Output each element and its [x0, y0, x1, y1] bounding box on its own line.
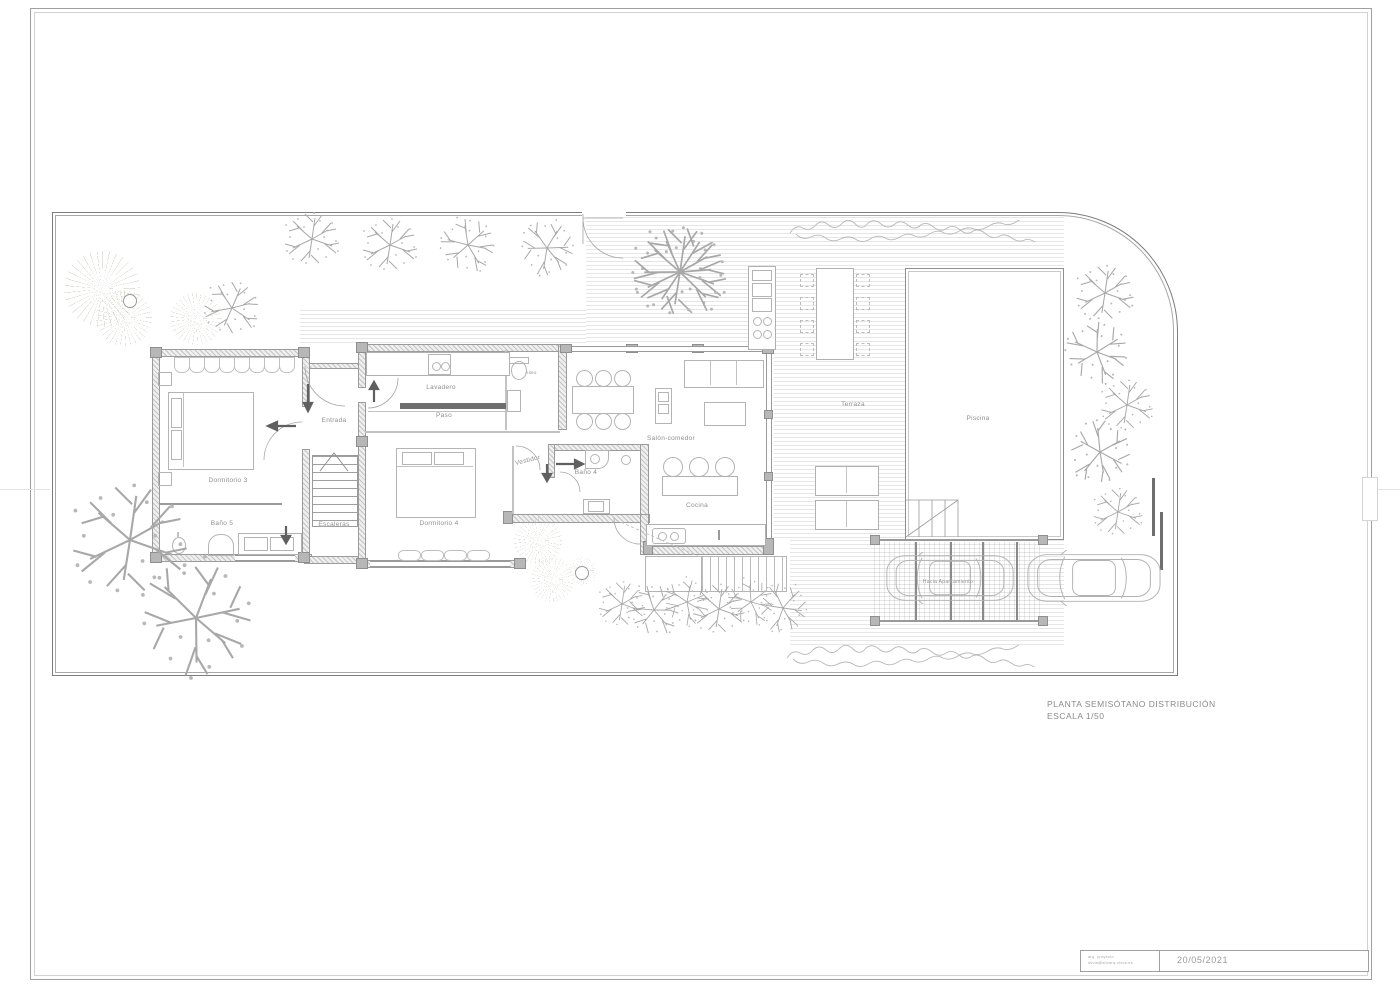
wall	[558, 344, 567, 430]
side-path-decking	[300, 310, 586, 347]
exterior-stairs	[701, 556, 787, 592]
sofa-icon	[684, 360, 764, 388]
area-label-hacia-aparcamiento: Hacia Aparcamiento	[923, 580, 973, 585]
chair-icon	[800, 320, 814, 333]
sink-icon	[244, 537, 268, 551]
wardrobe-door-icon	[444, 550, 467, 561]
carport-post-line	[915, 542, 917, 620]
partition	[512, 446, 514, 514]
chair-icon	[614, 370, 631, 387]
swimming-pool	[905, 268, 1064, 540]
plan-title-scale: ESCALA 1/50	[1047, 710, 1216, 722]
pillow-icon	[171, 398, 182, 428]
closet-door-icon	[189, 357, 205, 373]
sofa-cushion-line	[736, 361, 737, 385]
chair-icon	[856, 343, 870, 356]
room-label-paso: Paso	[436, 413, 452, 420]
wall	[360, 344, 567, 352]
washer-drum	[441, 362, 450, 371]
chair-icon	[856, 274, 870, 287]
window	[766, 419, 772, 472]
wardrobe-door-icon	[398, 550, 421, 561]
carport-post	[1038, 535, 1048, 545]
gate-bar	[1152, 478, 1155, 536]
partition	[160, 503, 282, 505]
chair-icon	[800, 297, 814, 310]
chair-icon	[856, 320, 870, 333]
toilet-icon	[172, 537, 186, 554]
carport-beam	[874, 539, 1044, 541]
drawing-sheet: Dormitorio 3 Baño 5 Entrada Escaleras La…	[0, 0, 1400, 989]
closet-door-icon	[249, 357, 265, 373]
stool-icon	[663, 457, 683, 477]
wardrobe-door-icon	[467, 550, 490, 561]
pillar	[356, 558, 368, 569]
wall	[152, 349, 310, 357]
room-label-lavadero: Lavadero	[426, 385, 456, 392]
room-label-dormitorio3: Dormitorio 3	[209, 478, 248, 485]
room-label-salon-comedor: Salón-comedor	[647, 436, 695, 443]
chair-icon	[614, 413, 631, 430]
pillar	[150, 347, 162, 358]
window	[235, 555, 295, 561]
closet-door-icon	[204, 357, 220, 373]
pillar	[764, 410, 773, 419]
toilet-tank	[509, 357, 529, 364]
stool-icon	[715, 457, 735, 477]
sink-drain	[590, 454, 600, 464]
chair-icon	[576, 370, 593, 387]
faucet-icon	[718, 530, 720, 540]
room-label-escaleras: Escaleras	[318, 522, 349, 529]
kitchen-island	[662, 476, 738, 496]
dining-table-icon	[572, 386, 634, 414]
stool-icon	[689, 457, 709, 477]
chair-icon	[595, 413, 612, 430]
carport-beam	[874, 620, 1044, 622]
sink-icon	[270, 537, 294, 551]
burner-icon	[763, 330, 772, 339]
sofa-cushion-line	[710, 361, 711, 385]
bed-headboard	[397, 466, 473, 467]
chair-icon	[800, 274, 814, 287]
closet-door-icon	[264, 357, 280, 373]
window	[572, 346, 762, 352]
pillow-icon	[171, 430, 182, 460]
burner-icon	[753, 330, 762, 339]
lounger-divider	[846, 501, 847, 527]
closet-door-icon	[279, 357, 295, 373]
plan-title-line1: PLANTA SEMISÓTANO DISTRIBUCIÓN	[1047, 698, 1216, 710]
pool-waterline	[908, 271, 1061, 537]
toilet-tank	[177, 532, 179, 538]
landing	[645, 556, 703, 592]
chair-icon	[595, 370, 612, 387]
palm-tree-icon	[530, 558, 574, 602]
room-label-bano4: Baño 4	[575, 470, 597, 477]
chair-icon	[856, 297, 870, 310]
room-label-dormitorio4: Dormitorio 4	[420, 521, 459, 528]
wall	[302, 363, 364, 369]
room-label-bano5: Baño 5	[211, 521, 233, 528]
palm-tree-icon	[170, 293, 222, 345]
area-label-terraza: Terraza	[841, 402, 865, 409]
tree-trunk-icon	[123, 294, 137, 308]
coffee-table-icon	[704, 402, 746, 426]
contact-line2: silvia@silvarq-vives.es	[1088, 960, 1133, 966]
plan-title: PLANTA SEMISÓTANO DISTRIBUCIÓN ESCALA 1/…	[1047, 698, 1216, 723]
tv-unit-shelf	[658, 404, 669, 414]
lounger-icon	[815, 466, 879, 496]
outdoor-table	[816, 268, 854, 360]
partition	[365, 431, 560, 433]
wall	[640, 444, 649, 523]
drain-icon	[621, 455, 631, 465]
closet-door-icon	[219, 357, 235, 373]
lounger-divider	[846, 467, 847, 493]
toilet-seat	[588, 501, 604, 512]
wall	[548, 444, 555, 478]
tree-trunk-icon	[575, 566, 589, 580]
bbq-module	[752, 298, 772, 312]
pillar	[560, 344, 572, 353]
carport-post	[1038, 616, 1048, 626]
fold-mark-left	[0, 489, 50, 490]
carport-post	[870, 535, 880, 545]
carport-post	[870, 616, 880, 626]
burner-icon	[753, 317, 762, 326]
nightstand-icon	[158, 372, 172, 386]
washer-drum	[432, 362, 441, 371]
lounger-icon	[815, 500, 879, 530]
carport-post-line	[982, 542, 984, 620]
room-label-aseo: Aseo	[525, 371, 536, 376]
bbq-module	[752, 283, 772, 297]
bench-icon	[400, 403, 506, 409]
pillar	[356, 436, 368, 447]
sink-bowl	[658, 532, 667, 541]
pillar	[298, 347, 310, 358]
window	[370, 561, 510, 567]
window	[766, 481, 772, 538]
burner-icon	[763, 317, 772, 326]
closet-door-icon	[234, 357, 250, 373]
room-label-entrada: Entrada	[322, 418, 347, 425]
sink-icon	[507, 390, 521, 412]
pillow-icon	[434, 452, 464, 465]
chair-icon	[800, 343, 814, 356]
nightstand-icon	[158, 472, 172, 486]
carport-post-line	[1016, 542, 1018, 620]
gate-bar	[1160, 512, 1163, 570]
shower-icon	[208, 534, 234, 556]
area-label-piscina: Piscina	[966, 416, 989, 423]
room-label-cocina: Cocina	[686, 503, 708, 510]
pillar	[764, 472, 773, 481]
window	[766, 354, 772, 410]
title-block-date: 20/05/2021	[1177, 955, 1228, 965]
sink-bowl	[670, 532, 679, 541]
wardrobe-door-icon	[421, 550, 444, 561]
title-block-divider	[1159, 951, 1160, 971]
wall	[358, 402, 366, 440]
wall	[302, 449, 310, 562]
wall	[645, 546, 774, 555]
title-block-contact: arq. proyecto silvia@silvarq-vives.es	[1088, 954, 1133, 967]
frame-marker	[1362, 477, 1378, 521]
pillar	[150, 552, 162, 563]
title-block: arq. proyecto silvia@silvarq-vives.es 20…	[1080, 950, 1369, 972]
closet-door-icon	[174, 357, 190, 373]
bbq-module	[752, 270, 772, 281]
chair-icon	[576, 413, 593, 430]
wall	[358, 440, 366, 568]
pillow-icon	[402, 452, 432, 465]
stairs	[312, 455, 358, 527]
bed-headboard	[183, 393, 184, 467]
tv-unit-shelf	[658, 392, 669, 402]
